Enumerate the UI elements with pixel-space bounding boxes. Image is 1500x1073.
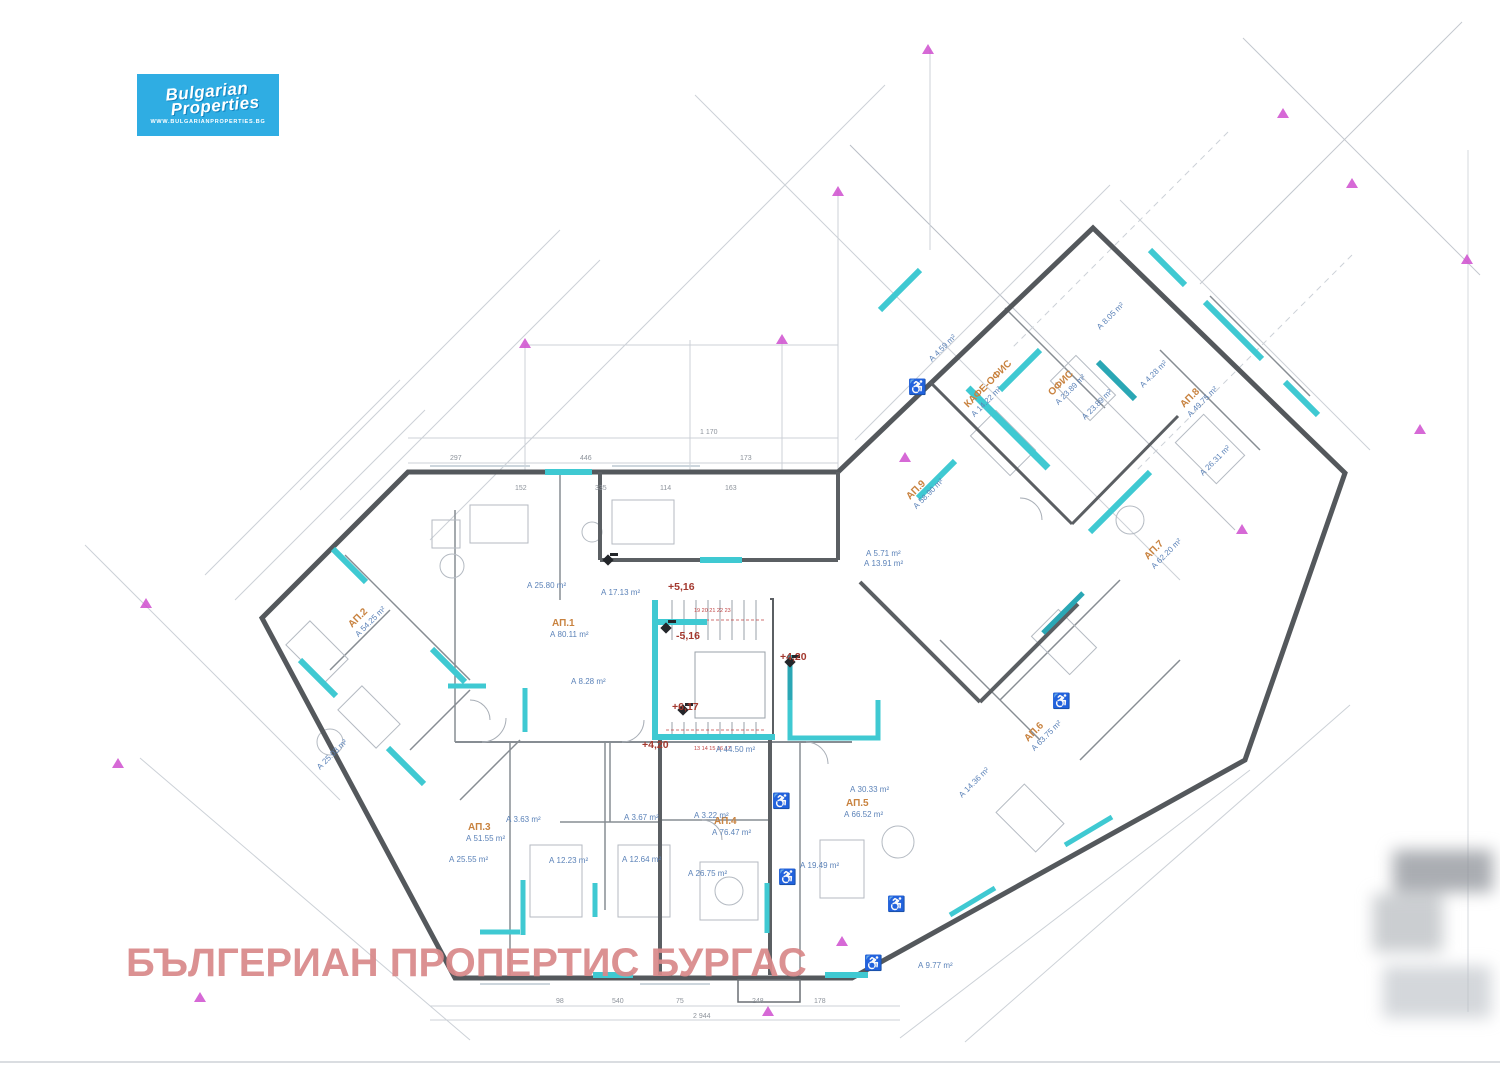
building-outline-walls [262, 228, 1345, 984]
room-area-label: А 30.33 m² [850, 785, 889, 794]
svg-text:АП.1: АП.1 [552, 618, 575, 629]
axis-marker-icon [922, 44, 934, 54]
dimension-label: 98 [556, 998, 564, 1005]
wheelchair-icon: ♿ [864, 954, 883, 972]
wheelchair-icon: ♿ [772, 792, 791, 810]
room-area-label: А 14.36 m² [957, 765, 991, 799]
axis-marker-icon [776, 334, 788, 344]
blurred-block-segment [1393, 850, 1493, 892]
svg-text:А 80.11 m²: А 80.11 m² [550, 630, 589, 639]
axis-marker-icon [832, 186, 844, 196]
wheelchair-icon: ♿ [887, 895, 906, 913]
axis-marker-icon [899, 452, 911, 462]
logo-url: WWW.BULGARIANPROPERTIES.BG [150, 119, 265, 125]
room-area-label: А 3.67 m² [624, 813, 659, 822]
dimension-label: 114 [660, 485, 671, 492]
dimension-label: 1 170 [700, 429, 718, 436]
watermark-text: БЪЛГЕРИАН ПРОПЕРТИС БУРГАС [126, 941, 807, 986]
room-area-label: А 8.28 m² [571, 677, 606, 686]
svg-text:А 76.47 m²: А 76.47 m² [712, 828, 751, 837]
dimension-label: 2 944 [693, 1013, 711, 1020]
svg-text:АП.3: АП.3 [468, 822, 491, 833]
apartment-label: АП.6 А 63.75 m² [1021, 710, 1064, 753]
elevation-label: +6,17 [672, 701, 699, 713]
axis-marker-icon [1277, 108, 1289, 118]
logo-title: Bulgarian Properties [155, 80, 260, 119]
apartment-label: АП.8 А 49.75 m² [1177, 376, 1220, 419]
room-area-label: А 5.71 m² [866, 549, 901, 558]
dimension-label: 248 [752, 998, 764, 1005]
elevation-label: +4,20 [780, 651, 807, 663]
svg-text:А 66.52 m²: А 66.52 m² [844, 810, 883, 819]
bulgarian-properties-logo: Bulgarian Properties WWW.BULGARIANPROPER… [137, 74, 279, 136]
apartment-label: АП.5 А 66.52 m² [844, 798, 883, 819]
elevation-label: -5,16 [676, 630, 700, 642]
axis-marker-icon [762, 1006, 774, 1016]
room-area-label: А 25.55 m² [449, 855, 488, 864]
room-area-label: А 3.63 m² [506, 815, 541, 824]
wheelchair-icon: ♿ [1052, 692, 1071, 710]
blurred-block-segment [1373, 894, 1443, 952]
room-area-label: А 4.28 m² [1138, 358, 1169, 389]
wheelchair-icon: ♿ [908, 378, 927, 396]
room-area-label: А 44.50 m² [716, 745, 755, 754]
room-area-label: А 9.77 m² [918, 961, 953, 970]
blurred-title-block [1345, 828, 1500, 1043]
dimension-label: 446 [580, 455, 592, 462]
room-area-label: А 13.91 m² [864, 559, 903, 568]
apartment-label: АП.7 А 62.20 m² [1141, 528, 1184, 571]
room-area-label: А 19.49 m² [800, 861, 839, 870]
dimension-label: 178 [814, 998, 826, 1005]
svg-text:А 51.55 m²: А 51.55 m² [466, 834, 505, 843]
room-area-label: А 3.22 m² [694, 811, 729, 820]
axis-marker-icon [1236, 524, 1248, 534]
axis-marker-icon [194, 992, 206, 1002]
floor-plan-sheet: 19 20 21 22 23 13 14 15 16 17 [0, 0, 1500, 1073]
apartment-label: АП.3 А 51.55 m² [466, 822, 505, 843]
apartment-label: АП.2 А 54.25 m² [345, 596, 388, 639]
svg-text:АП.5: АП.5 [846, 798, 869, 809]
axis-marker-icon [140, 598, 152, 608]
stair-upper-step-numbers: 19 20 21 22 23 [694, 608, 731, 614]
elevation-label: +5,16 [668, 581, 695, 593]
dimension-label: 540 [612, 998, 624, 1005]
room-area-label: А 26.75 m² [688, 869, 727, 878]
blurred-block-segment [1383, 966, 1491, 1018]
dimension-label: 163 [725, 485, 737, 492]
logo-title-line2: Properties [171, 95, 261, 118]
dimension-label: 173 [740, 455, 752, 462]
axis-marker-icon [1346, 178, 1358, 188]
floor-plan-drawing: 19 20 21 22 23 13 14 15 16 17 [0, 0, 1500, 1073]
axis-marker-icon [112, 758, 124, 768]
dimension-label: 75 [676, 998, 684, 1005]
construction-lines [0, 22, 1500, 1062]
room-area-label: А 25.80 m² [527, 581, 566, 590]
room-area-label: А 17.13 m² [601, 588, 640, 597]
room-area-label: А 12.64 m² [622, 855, 661, 864]
dimension-label: 335 [595, 485, 607, 492]
room-area-label: А 12.23 m² [549, 856, 588, 865]
axis-marker-icon [836, 936, 848, 946]
apartment-label: АП.1 А 80.11 m² [550, 618, 589, 639]
room-area-label: А 8.05 m² [1095, 300, 1126, 331]
wheelchair-icon: ♿ [778, 868, 797, 886]
axis-marker-icon [1414, 424, 1426, 434]
dimension-label: 297 [450, 455, 462, 462]
dimension-label: 152 [515, 485, 527, 492]
axis-marker-icon [1461, 254, 1473, 264]
elevation-label: +4,20 [642, 739, 669, 751]
